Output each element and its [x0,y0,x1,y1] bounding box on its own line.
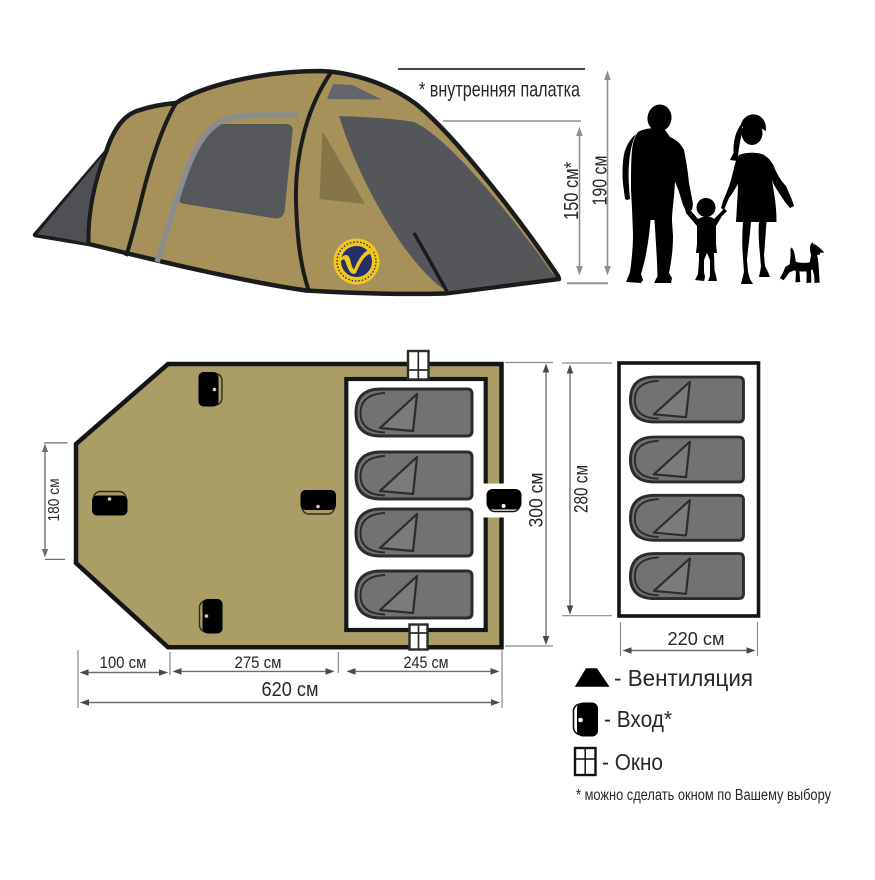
svg-text:* можно сделать окном по Вашем: * можно сделать окном по Вашему выбору [576,787,831,804]
svg-text:620 см: 620 см [262,679,319,701]
svg-text:- Окно: - Окно [602,749,663,775]
svg-text:190 см: 190 см [590,156,612,206]
svg-text:245 см: 245 см [404,654,449,672]
svg-text:- Вентиляция: - Вентиляция [614,665,753,691]
svg-text:100 см: 100 см [100,654,147,672]
svg-text:180 см: 180 см [46,479,63,522]
svg-text:150 см*: 150 см* [561,162,583,220]
svg-text:275 см: 275 см [235,654,282,672]
svg-text:300 см: 300 см [527,473,548,528]
svg-text:- Вход*: - Вход* [604,706,672,732]
svg-text:* внутренняя палатка: * внутренняя палатка [419,78,580,102]
svg-text:280 см: 280 см [572,465,593,513]
svg-text:220 см: 220 см [668,628,725,649]
